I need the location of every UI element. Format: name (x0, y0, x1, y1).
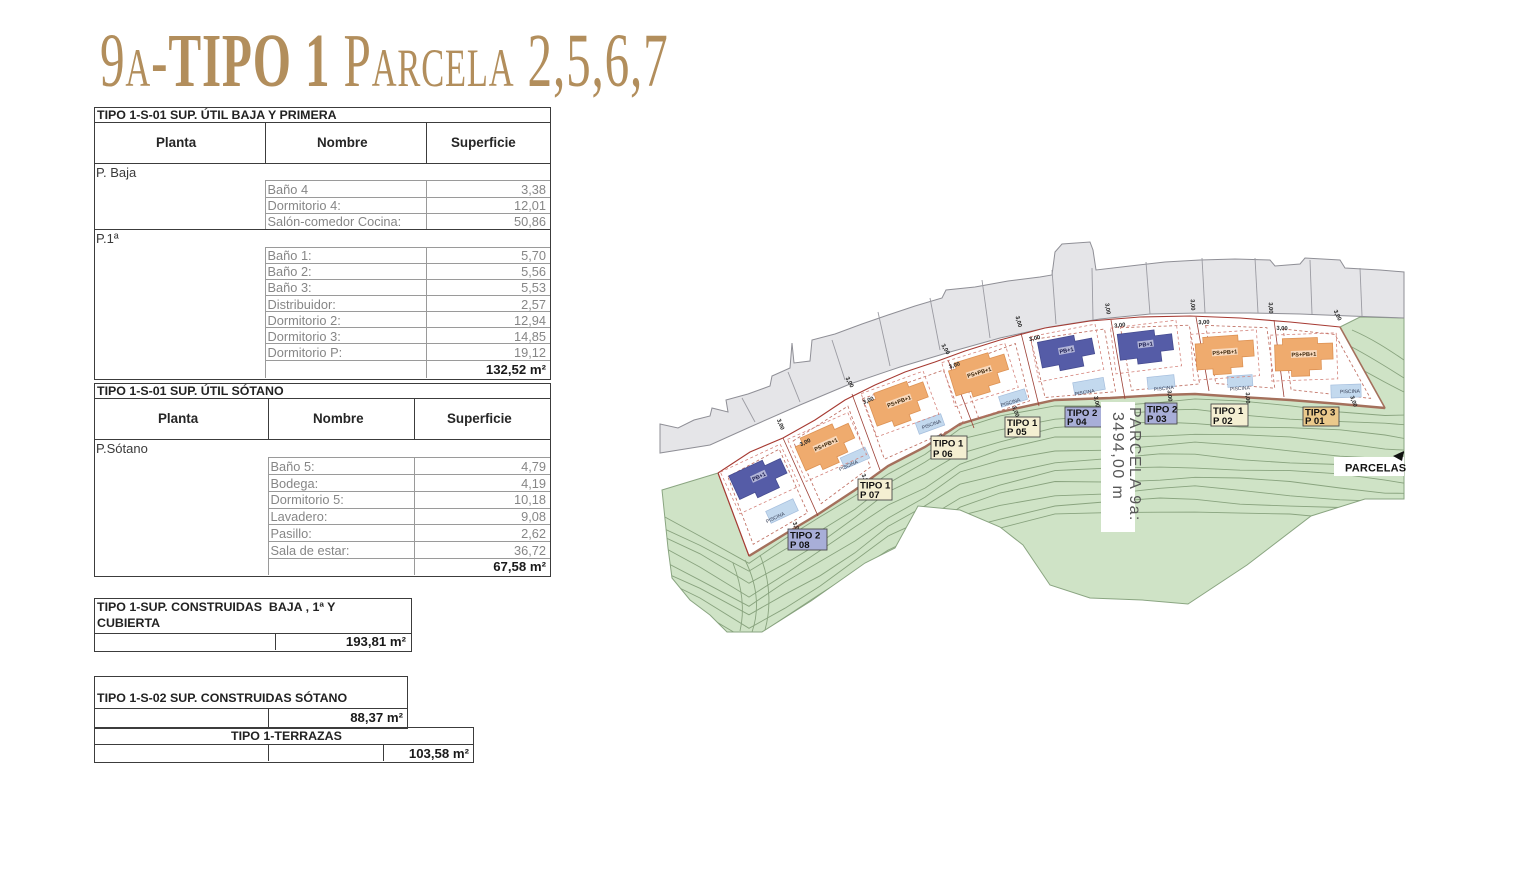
svg-text:PARCELA 9a:: PARCELA 9a: (1126, 407, 1143, 522)
svg-text:P 06: P 06 (933, 449, 953, 460)
svg-text:3,00: 3,00 (1166, 390, 1173, 402)
svg-text:P 05: P 05 (1007, 427, 1027, 438)
svg-text:TIPO 1: TIPO 1 (933, 438, 964, 449)
svg-text:PISCINA: PISCINA (1340, 389, 1361, 396)
svg-text:P 04: P 04 (1067, 417, 1087, 428)
svg-text:3,00: 3,00 (1189, 299, 1196, 311)
svg-text:P 08: P 08 (790, 540, 810, 551)
svg-text:P 03: P 03 (1147, 414, 1167, 425)
svg-text:P 07: P 07 (860, 490, 880, 501)
svg-text:3,00: 3,00 (775, 418, 785, 431)
svg-text:3,00: 3,00 (1267, 302, 1273, 313)
svg-text:3,00: 3,00 (1276, 326, 1287, 332)
svg-text:PS+PB+1: PS+PB+1 (1291, 352, 1316, 359)
svg-text:PARCELAS: PARCELAS (1345, 463, 1406, 475)
svg-text:3,00: 3,00 (1114, 322, 1126, 329)
svg-text:P 02: P 02 (1213, 416, 1233, 427)
svg-text:3,00: 3,00 (1198, 320, 1209, 326)
svg-text:3,00: 3,00 (1244, 392, 1250, 403)
svg-text:P 01: P 01 (1305, 416, 1325, 427)
svg-text:3494,00 m: 3494,00 m (1109, 412, 1126, 500)
